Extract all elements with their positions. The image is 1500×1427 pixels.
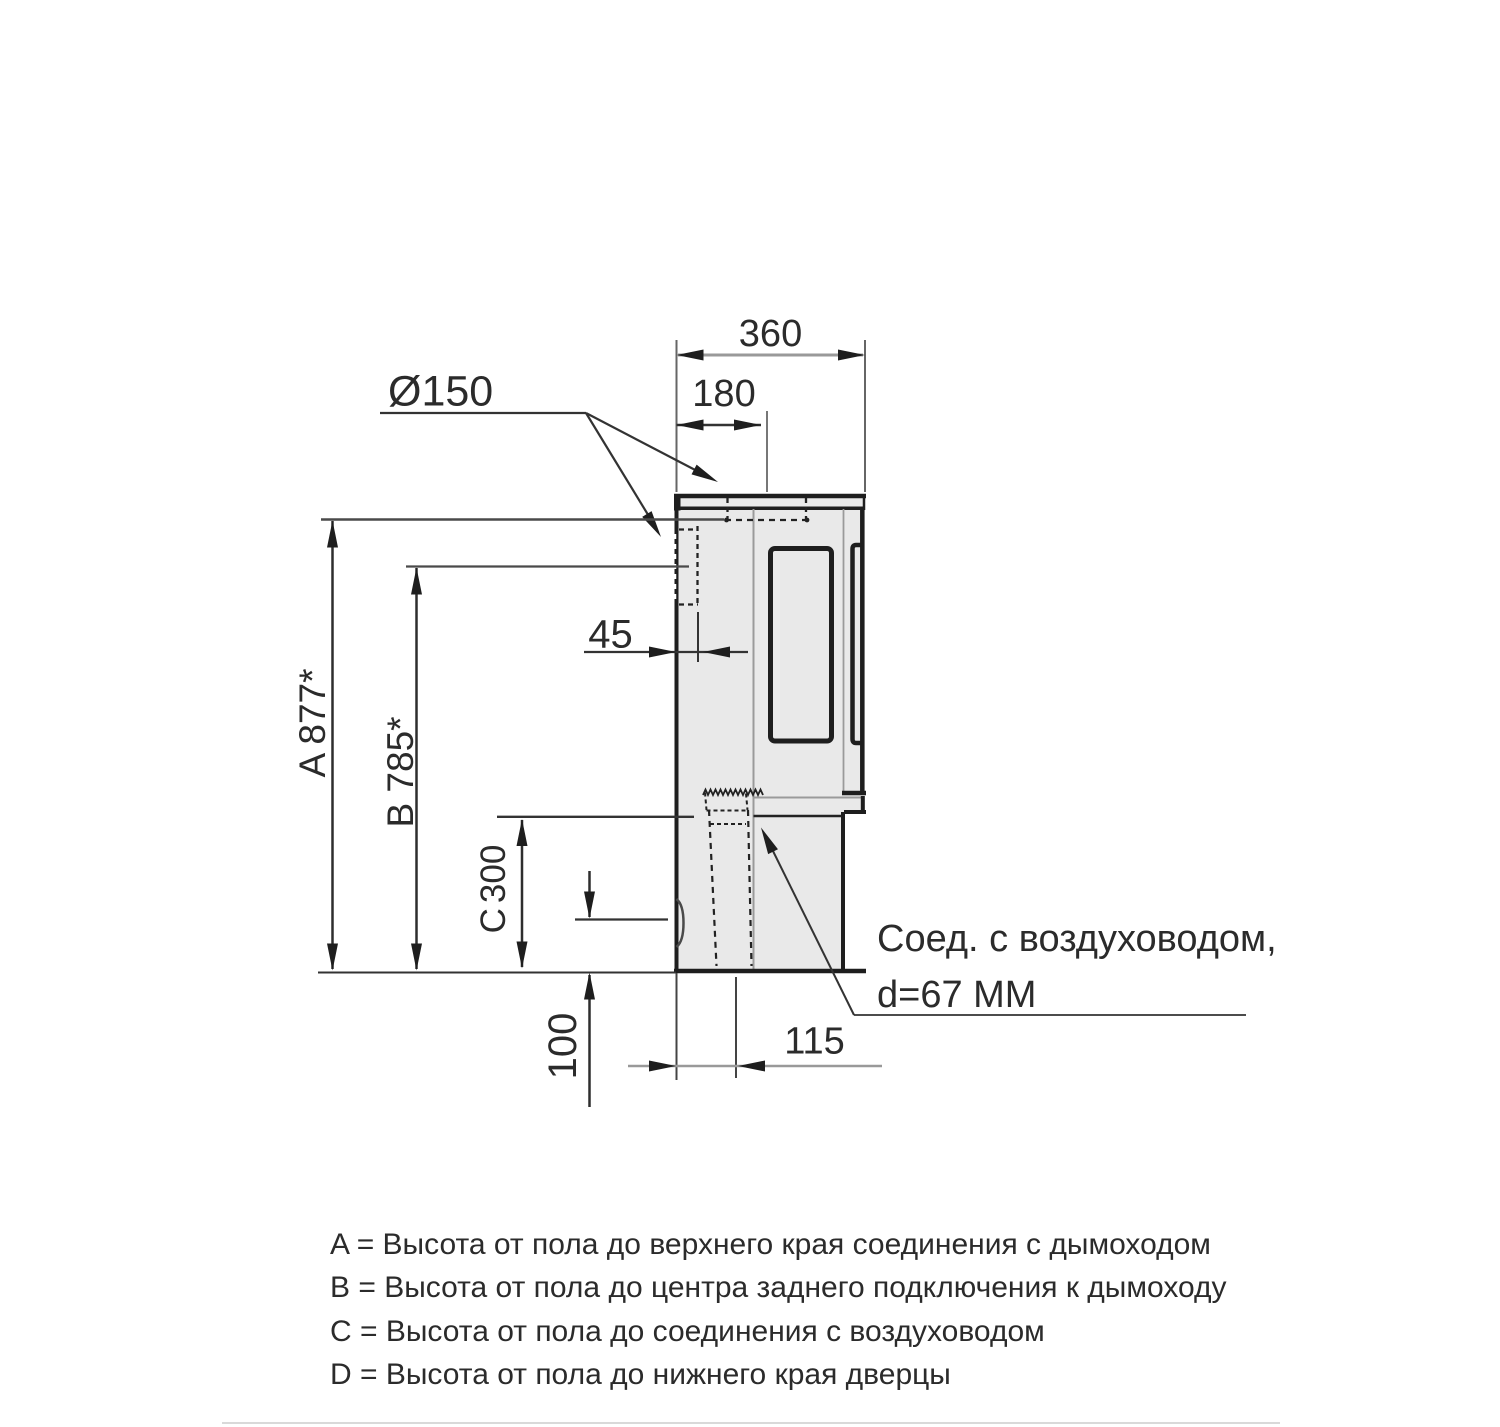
svg-text:B 785*: B 785* (380, 716, 421, 827)
svg-text:Ø150: Ø150 (388, 368, 493, 416)
svg-text:D = Высота от пола до нижнего: D = Высота от пола до нижнего края дверц… (330, 1358, 951, 1391)
svg-text:B = Высота от пола до центра з: B = Высота от пола до центра заднего под… (330, 1271, 1227, 1304)
svg-text:360: 360 (739, 313, 802, 355)
svg-text:45: 45 (588, 613, 633, 657)
svg-text:Соед. с воздуховодом,: Соед. с воздуховодом, (877, 918, 1277, 960)
svg-text:A = Высота от пола до верхнего: A = Высота от пола до верхнего края соед… (330, 1228, 1211, 1261)
svg-text:100: 100 (541, 1013, 585, 1080)
svg-text:180: 180 (692, 373, 755, 415)
svg-text:d=67 ММ: d=67 ММ (877, 974, 1036, 1016)
svg-text:C = Высота от пола до соединен: C = Высота от пола до соединения с возду… (330, 1315, 1045, 1348)
svg-text:C300: C300 (474, 845, 513, 934)
svg-text:115: 115 (784, 1021, 845, 1063)
svg-text:A 877*: A 877* (292, 668, 333, 777)
